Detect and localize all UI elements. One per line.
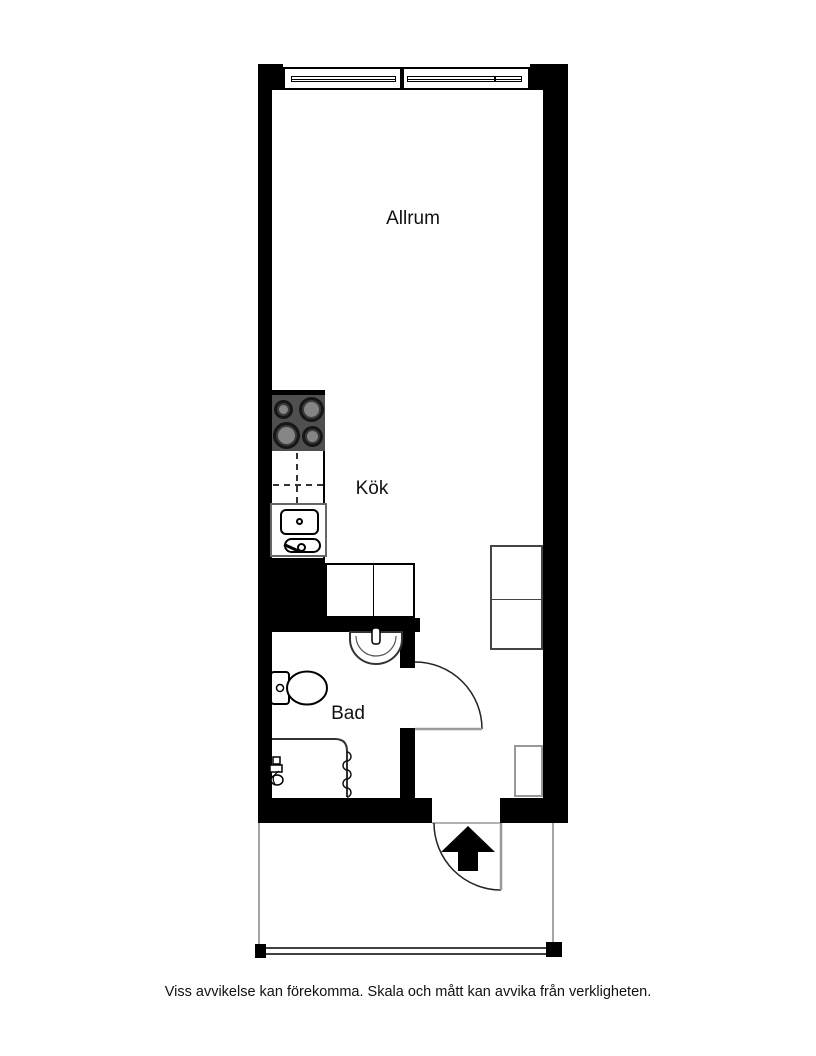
shower-mixer-body	[270, 765, 282, 772]
balcony-post-right	[546, 942, 562, 957]
shower-curtain-rod	[272, 739, 347, 797]
entrance-arrow	[441, 826, 495, 871]
toilet-bowl	[287, 672, 327, 705]
room-label-bad: Bad	[308, 703, 388, 725]
washbasin-faucet	[372, 628, 380, 644]
balcony-post-left	[255, 944, 266, 958]
bathroom-door-arc	[415, 662, 482, 729]
disclaimer-text: Viss avvikelse kan förekomma. Skala och …	[0, 984, 816, 1000]
room-label-kok: Kök	[332, 478, 412, 500]
toilet-flush-button	[277, 685, 284, 692]
shower-mixer-top	[273, 757, 280, 764]
linework-overlay	[0, 0, 816, 1056]
room-label-allrum: Allrum	[333, 208, 493, 230]
floorplan-canvas: Allrum Kök Bad Viss avvikelse kan föreko…	[0, 0, 816, 1056]
